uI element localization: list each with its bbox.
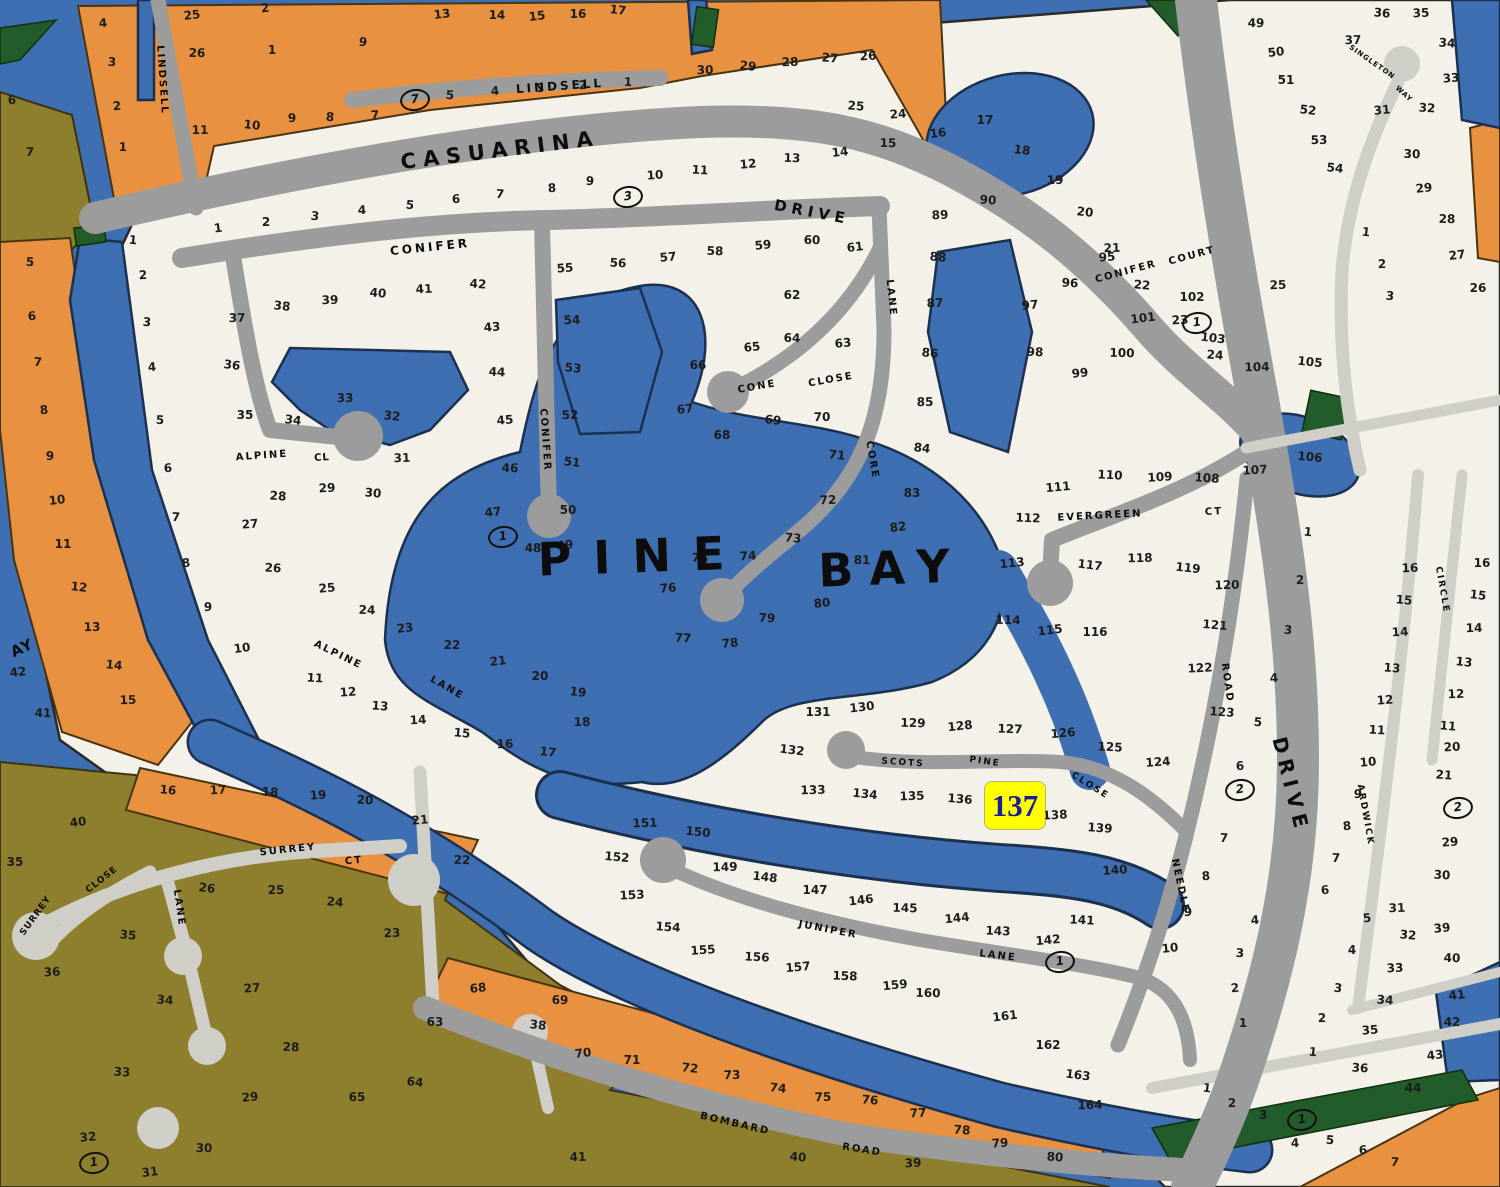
- lot-number: 145: [892, 901, 917, 915]
- lot-number: 25: [268, 883, 285, 897]
- lot-number: 17: [977, 113, 994, 127]
- lot-number: 134: [852, 786, 878, 803]
- street-label: NEEDLE: [1169, 858, 1191, 915]
- street-label: CLOSE: [807, 371, 854, 390]
- lot-number: 61: [846, 239, 864, 255]
- lot-number: 40: [69, 814, 87, 830]
- lot-number: 4: [98, 16, 107, 31]
- lot-number: 7: [1390, 1155, 1399, 1170]
- lot-number: 112: [1015, 511, 1041, 526]
- lot-number: 20: [356, 793, 373, 808]
- lot-number: 11: [55, 537, 72, 551]
- lot-number: 15: [528, 8, 546, 24]
- lot-number: 1: [624, 75, 633, 89]
- lot-number: 43: [1426, 1047, 1444, 1063]
- lot-number: 125: [1097, 739, 1123, 754]
- street-label: CT: [1205, 506, 1224, 518]
- lot-number: 36: [1373, 5, 1391, 20]
- lot-number: 11: [192, 123, 209, 137]
- lot-number: 7: [1219, 831, 1228, 845]
- lot-number: 7: [172, 510, 181, 524]
- lot-number: 28: [282, 1040, 299, 1055]
- lot-number: 41: [35, 706, 52, 720]
- lot-number: 7: [1332, 851, 1341, 865]
- lot-number: 44: [1405, 1081, 1422, 1095]
- lot-number: 148: [752, 869, 779, 886]
- lot-number: 16: [1474, 556, 1491, 570]
- lot-number: 46: [501, 461, 518, 476]
- street-label: COURT: [1167, 244, 1216, 267]
- street-label: JUNIPER: [798, 919, 859, 941]
- lot-number: 146: [848, 892, 875, 909]
- lot-number: 8: [1342, 819, 1352, 834]
- lot-number: 3: [107, 55, 116, 69]
- lot-number: 24: [358, 603, 375, 618]
- lot-number: 20: [532, 669, 549, 683]
- lot-number: 6: [163, 461, 173, 476]
- lot-number: 2: [1230, 981, 1240, 996]
- lot-number: 21: [1435, 767, 1453, 782]
- lot-number: 16: [929, 125, 947, 141]
- lot-number: 144: [944, 910, 970, 927]
- lot-number: 57: [659, 249, 677, 264]
- lot-number: 86: [921, 345, 939, 361]
- street-label: CONIFER: [389, 236, 470, 258]
- lot-number: 22: [453, 853, 470, 868]
- lot-number: 5: [1362, 911, 1372, 926]
- lot-number: 142: [1035, 932, 1061, 948]
- lot-number: 77: [909, 1106, 926, 1121]
- lot-number: 39: [904, 1156, 921, 1171]
- lot-number: 115: [1037, 622, 1064, 639]
- lot-number: 68: [714, 428, 731, 442]
- lot-number: 141: [1069, 912, 1095, 927]
- lot-number: 24: [889, 106, 907, 121]
- lot-number: 2: [138, 268, 147, 282]
- lot-number: 16: [1401, 561, 1418, 576]
- section-marker: 2: [1442, 795, 1475, 821]
- lot-number: 12: [1376, 692, 1394, 707]
- lot-number: 39: [1433, 920, 1451, 935]
- lot-number: 37: [229, 311, 246, 325]
- lot-number: 106: [1297, 449, 1323, 465]
- lot-number: 129: [900, 716, 925, 730]
- lot-number: 21: [489, 653, 507, 669]
- lot-number: 29: [1415, 180, 1433, 196]
- street-label: BAY: [817, 538, 966, 597]
- lot-number: 157: [785, 959, 811, 975]
- lot-number: 3: [1283, 623, 1293, 638]
- lot-number: 78: [953, 1122, 971, 1137]
- lot-number: 82: [889, 519, 907, 535]
- lot-number: 1: [128, 233, 138, 248]
- lot-number: 35: [1361, 1022, 1379, 1037]
- lot-number: 40: [369, 285, 387, 300]
- lot-number: 23: [396, 620, 414, 636]
- lot-number: 27: [243, 980, 261, 995]
- lot-number: 40: [789, 1149, 807, 1164]
- section-marker: 2: [1224, 777, 1257, 803]
- lot-number: 28: [269, 488, 287, 503]
- lot-number: 78: [721, 635, 739, 650]
- lot-number: 16: [496, 737, 513, 752]
- lot-number: 25: [318, 580, 336, 595]
- lot-number: 36: [43, 965, 60, 980]
- lot-number: 7: [370, 108, 379, 122]
- lot-number: 97: [1021, 297, 1039, 312]
- lot-number: 67: [676, 401, 694, 417]
- lot-number: 3: [310, 209, 320, 224]
- lot-number: 100: [1109, 346, 1134, 360]
- lot-number: 95: [1098, 249, 1116, 264]
- lot-number: 4: [147, 360, 156, 375]
- street-label: ARDWICK: [1355, 783, 1376, 846]
- lot-number: 32: [1418, 101, 1435, 116]
- lot-number: 1: [1361, 225, 1371, 240]
- lot-number: 71: [828, 447, 846, 463]
- street-label: LANE: [979, 948, 1017, 963]
- lot-number: 9: [46, 449, 55, 463]
- lot-number: 5: [155, 413, 164, 427]
- lot-number: 33: [1442, 70, 1460, 85]
- lot-number: 51: [563, 454, 581, 470]
- lot-number: 28: [1439, 212, 1456, 226]
- lot-number: 4: [1250, 913, 1260, 928]
- lot-number: 135: [899, 789, 925, 804]
- section-marker: 1: [487, 524, 520, 550]
- lot-number: 2: [112, 99, 122, 114]
- lot-number: 1: [1202, 1081, 1212, 1096]
- street-label: SCOTS: [881, 756, 925, 769]
- lot-number: 27: [241, 516, 259, 531]
- lot-number: 133: [800, 783, 825, 797]
- lot-number: 42: [469, 276, 487, 291]
- lot-number: 76: [659, 580, 677, 595]
- lot-number: 7: [26, 145, 35, 159]
- lot-number: 15: [880, 136, 897, 150]
- lot-number: 132: [779, 742, 806, 759]
- lot-number: 16: [159, 782, 177, 797]
- lot-number: 36: [1351, 1061, 1368, 1076]
- lot-number: 124: [1145, 754, 1171, 770]
- lot-number: 11: [1439, 718, 1457, 733]
- lot-number: 33: [337, 391, 354, 405]
- lot-number: 17: [209, 783, 226, 798]
- lot-number: 149: [712, 860, 737, 874]
- plat-map: 1234567891011121314151617181920212223245…: [0, 0, 1500, 1187]
- lot-number: 32: [1399, 927, 1417, 942]
- lot-number: 32: [79, 1129, 97, 1144]
- street-label: PINE: [537, 525, 748, 586]
- lot-number: 14: [1466, 621, 1483, 635]
- lot-number: 49: [1248, 16, 1265, 30]
- lot-number: 123: [1209, 704, 1235, 720]
- lot-number: 52: [562, 408, 579, 422]
- lot-number: 11: [691, 163, 708, 178]
- lot-number: 53: [1311, 133, 1328, 147]
- lot-number: 29: [739, 58, 757, 74]
- lot-number: 128: [947, 718, 973, 735]
- lot-number: 10: [233, 640, 251, 656]
- lot-number: 130: [849, 699, 876, 716]
- lot-number: 53: [564, 360, 582, 376]
- lot-number: 4: [1269, 671, 1278, 685]
- lot-number: 3: [1258, 1108, 1268, 1123]
- lot-number: 34: [156, 992, 174, 1007]
- lot-number: 27: [821, 50, 839, 65]
- street-label: LANE: [884, 279, 899, 317]
- lot-number: 64: [783, 331, 800, 346]
- lot-number: 70: [574, 1045, 592, 1061]
- lot-number: 7: [34, 355, 43, 369]
- lot-number: 5: [1253, 715, 1262, 730]
- lot-number: 25: [847, 98, 865, 113]
- lot-number: 9: [358, 35, 368, 50]
- street-label: CT: [344, 855, 363, 868]
- lot-number: 162: [1035, 1038, 1060, 1052]
- lot-number: 11: [1368, 723, 1385, 738]
- lot-number: 118: [1127, 551, 1152, 565]
- lot-number: 1: [213, 221, 223, 236]
- lot-number: 102: [1179, 290, 1204, 304]
- lot-number: 71: [624, 1053, 641, 1067]
- section-marker: 1: [78, 1150, 111, 1176]
- lot-number: 2: [1378, 257, 1387, 271]
- lot-number: 36: [223, 357, 241, 373]
- street-label: LINDSELL: [154, 45, 170, 115]
- lot-number: 147: [802, 883, 827, 897]
- lot-number: 80: [813, 595, 831, 611]
- lot-number: 38: [529, 1017, 547, 1033]
- lot-number: 65: [743, 339, 761, 355]
- lot-number: 2: [260, 1, 270, 16]
- lot-number: 1: [1303, 525, 1313, 540]
- lot-number: 150: [685, 824, 711, 841]
- street-label: ALPINE: [312, 639, 364, 672]
- lot-number: 40: [1443, 951, 1460, 966]
- lot-number: 87: [926, 296, 943, 311]
- lot-number: 104: [1244, 360, 1269, 374]
- street-label: AY: [8, 635, 36, 661]
- lot-number: 17: [539, 744, 557, 760]
- street-label: ALPINE: [235, 449, 288, 464]
- lot-number: 10: [48, 492, 66, 508]
- lot-number: 6: [7, 93, 17, 108]
- lot-number: 122: [1187, 660, 1213, 675]
- lot-number: 24: [1206, 347, 1224, 362]
- lot-number: 12: [339, 684, 357, 699]
- lot-number: 5: [445, 88, 454, 103]
- lot-number: 151: [632, 816, 658, 831]
- lot-number: 50: [1267, 44, 1285, 60]
- lot-number: 33: [1386, 961, 1403, 976]
- lot-number: 70: [814, 410, 831, 424]
- lot-number: 76: [861, 1092, 879, 1107]
- section-marker: 7: [399, 87, 432, 113]
- lot-number: 63: [427, 1015, 444, 1029]
- street-label: LANE: [428, 674, 466, 702]
- lot-number: 26: [1470, 281, 1487, 295]
- lot-number: 159: [882, 977, 908, 994]
- lot-number: 3: [142, 315, 151, 330]
- lot-number: 20: [1076, 204, 1094, 220]
- lot-number: 5: [405, 198, 415, 213]
- lot-number: 4: [1291, 1136, 1300, 1150]
- lot-number: 109: [1147, 469, 1173, 485]
- lot-number: 30: [196, 1141, 213, 1155]
- lot-number: 77: [674, 631, 691, 646]
- lot-number: 13: [84, 620, 101, 634]
- lot-number: 26: [859, 49, 876, 64]
- lot-number: 10: [1161, 940, 1179, 956]
- lot-number: 127: [997, 722, 1023, 737]
- lot-number: 73: [784, 530, 802, 545]
- lot-number: 31: [141, 1164, 159, 1180]
- lot-number: 27: [1448, 247, 1466, 263]
- street-label: ROAD: [1219, 662, 1235, 703]
- lot-number: 2: [262, 215, 270, 229]
- lot-number: 6: [27, 309, 37, 324]
- lot-number: 30: [697, 63, 714, 77]
- street-label: PINE: [969, 755, 1002, 769]
- lot-number: 18: [574, 715, 591, 729]
- lot-number: 60: [804, 233, 821, 247]
- lot-number: 152: [604, 849, 630, 865]
- lot-number: 25: [183, 7, 201, 23]
- street-label: CONE: [737, 378, 777, 396]
- lot-number: 111: [1045, 479, 1071, 495]
- lot-number: 75: [814, 1090, 831, 1105]
- lot-number: 29: [241, 1089, 259, 1105]
- street-label: CONIFER: [537, 408, 552, 472]
- lot-number: 31: [1373, 102, 1391, 117]
- lot-number: 140: [1102, 862, 1128, 878]
- lot-number: 19: [309, 787, 327, 802]
- lot-number: 15: [1395, 592, 1413, 607]
- lot-number: 12: [739, 156, 757, 171]
- lot-number: 52: [1299, 102, 1317, 118]
- lot-number: 7: [495, 187, 505, 202]
- lot-number: 35: [7, 855, 24, 869]
- lot-number: 34: [1376, 992, 1394, 1007]
- lot-number: 74: [769, 1080, 787, 1096]
- lot-number: 156: [744, 949, 770, 964]
- lot-number: 164: [1077, 1098, 1102, 1112]
- street-label: SINGLETON: [1348, 43, 1397, 81]
- lot-number: 154: [655, 919, 681, 935]
- lot-number: 55: [556, 260, 574, 275]
- lot-number: 69: [552, 993, 569, 1007]
- lot-number: 90: [979, 192, 997, 207]
- lot-number: 72: [819, 493, 836, 508]
- street-label: CLOSE: [84, 865, 120, 896]
- lot-number: 99: [1071, 365, 1089, 381]
- lot-number: 84: [913, 440, 931, 456]
- lot-number: 35: [237, 408, 254, 422]
- lot-number: 28: [781, 55, 798, 70]
- lot-number: 158: [832, 969, 858, 984]
- street-label: DRIVE: [773, 196, 851, 228]
- lot-number: 2: [1228, 1096, 1237, 1110]
- lot-number: 13: [433, 6, 451, 22]
- lot-number: 39: [321, 293, 338, 308]
- lot-number: 68: [469, 980, 487, 996]
- lot-number: 62: [784, 288, 801, 302]
- lot-number: 19: [569, 684, 587, 700]
- lot-number: 42: [1444, 1015, 1461, 1029]
- lot-number: 101: [1130, 310, 1157, 327]
- lot-number: 79: [991, 1135, 1009, 1150]
- lot-number: 107: [1242, 462, 1268, 477]
- lot-number: 11: [306, 671, 323, 686]
- lot-number: 14: [831, 144, 849, 160]
- lot-number: 32: [383, 408, 401, 424]
- lot-number: 34: [284, 412, 302, 428]
- lot-number: 139: [1087, 820, 1113, 836]
- street-label: CORE: [863, 440, 880, 480]
- lot-number: 2: [1296, 573, 1305, 587]
- lot-number: 8: [325, 110, 335, 125]
- street-label: SURREY: [18, 894, 53, 937]
- lot-number: 69: [764, 412, 782, 428]
- lot-number: 58: [706, 244, 723, 259]
- lot-number: 17: [609, 2, 627, 18]
- lot-number: 126: [1050, 725, 1076, 741]
- lot-number: 23: [383, 926, 400, 941]
- lot-number: 10: [1359, 754, 1377, 769]
- lot-number: 163: [1065, 1067, 1092, 1084]
- lot-number: 45: [496, 412, 514, 427]
- street-label: LINDSELL: [515, 76, 604, 96]
- section-marker: 1: [1044, 949, 1077, 975]
- lot-number: 105: [1297, 354, 1323, 371]
- lot-number: 22: [444, 638, 461, 652]
- lot-number: 5: [1325, 1133, 1335, 1148]
- lot-number: 30: [1403, 147, 1420, 162]
- lot-number: 14: [1391, 625, 1408, 640]
- lot-number: 161: [992, 1008, 1019, 1025]
- lot-number: 160: [915, 986, 940, 1000]
- lot-number: 6: [452, 192, 461, 206]
- lot-number: 14: [489, 8, 506, 22]
- street-label: CIRCLE: [1433, 566, 1451, 614]
- lot-number: 73: [724, 1068, 741, 1082]
- lot-number: 9: [204, 600, 213, 614]
- lot-number: 12: [1447, 687, 1464, 702]
- highlighted-lot-137[interactable]: 137: [985, 782, 1045, 829]
- street-label: LANE: [171, 889, 187, 927]
- lot-number: 51: [1278, 73, 1295, 87]
- lot-number: 8: [547, 181, 556, 195]
- lot-number: 1: [119, 140, 128, 154]
- lot-number: 117: [1077, 557, 1104, 574]
- lot-number: 38: [273, 298, 291, 314]
- lot-number: 63: [834, 335, 852, 350]
- lot-number: 108: [1194, 470, 1220, 486]
- lot-number: 6: [1358, 1143, 1367, 1157]
- lot-number: 15: [1469, 587, 1487, 603]
- street-label: DRIVE: [1267, 734, 1314, 835]
- lot-number: 153: [619, 887, 645, 902]
- lot-number: 8: [181, 556, 191, 571]
- lot-number: 79: [758, 611, 775, 626]
- lot-number: 24: [326, 894, 344, 910]
- lot-number: 64: [406, 1074, 424, 1090]
- lot-number: 4: [1348, 943, 1356, 957]
- lot-number: 26: [189, 46, 206, 60]
- lot-number: 26: [264, 561, 281, 576]
- lot-number: 35: [119, 927, 137, 942]
